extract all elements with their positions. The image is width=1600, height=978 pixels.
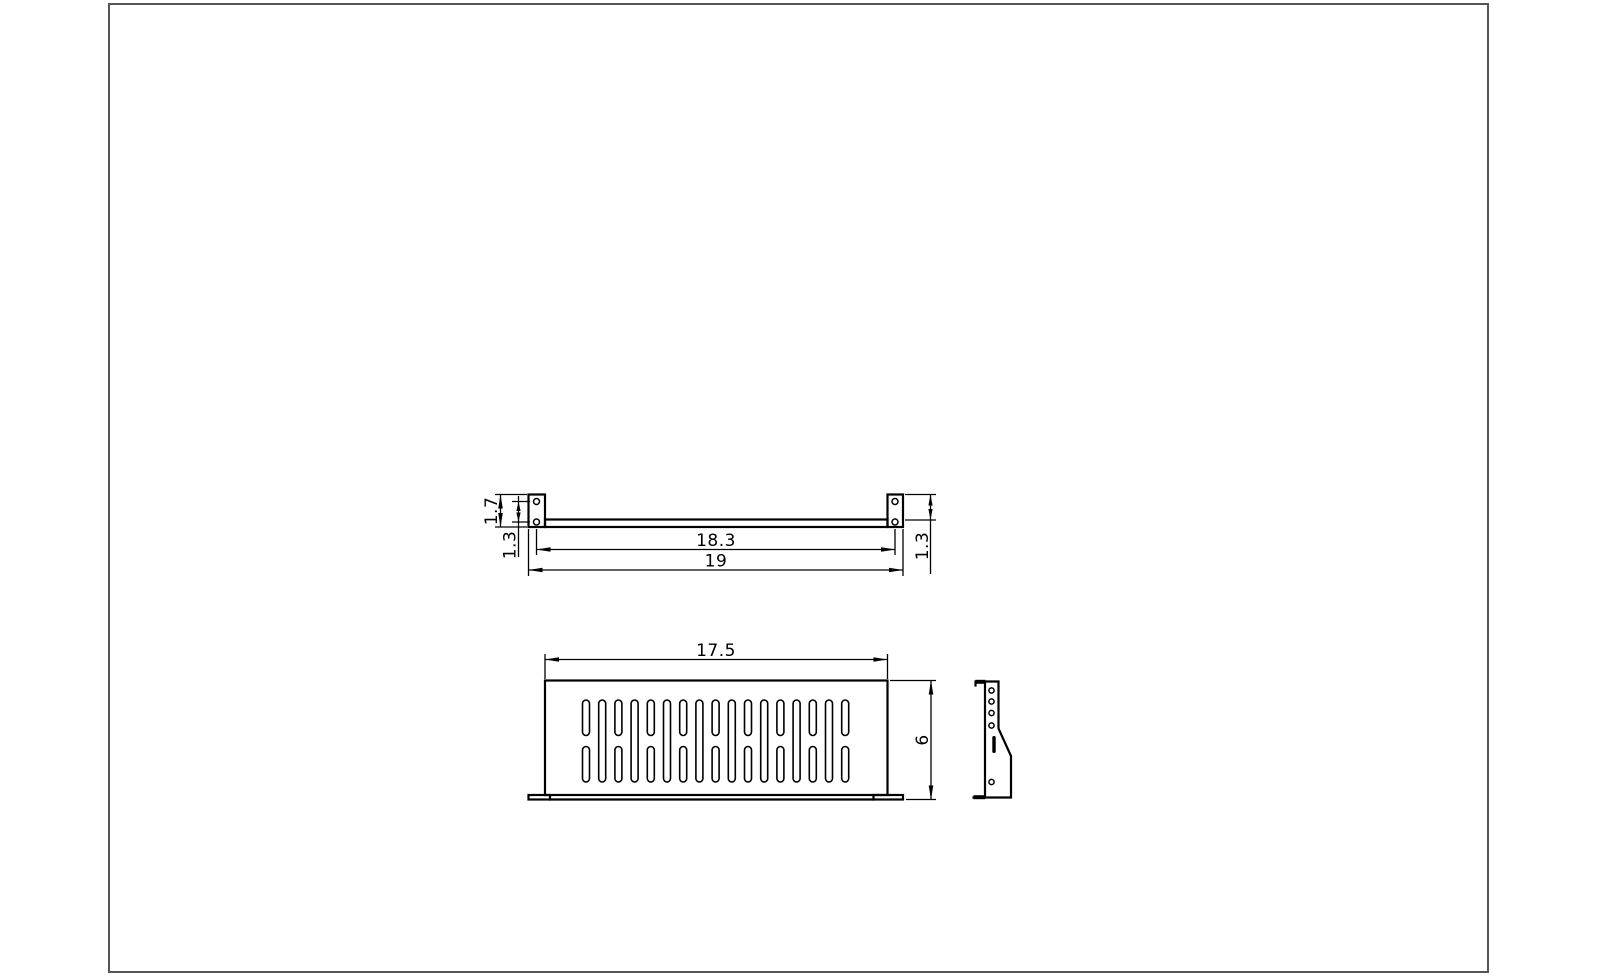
vent-slot bbox=[583, 700, 590, 736]
plan-view: 17.5 6 bbox=[529, 641, 937, 800]
bracket-hole-5 bbox=[989, 779, 994, 784]
dim-shelf-width: 17.5 bbox=[545, 641, 888, 679]
vent-slot bbox=[583, 747, 590, 783]
vent-slot bbox=[631, 700, 638, 782]
vent-slot bbox=[761, 700, 768, 782]
vent-slot bbox=[793, 700, 800, 782]
vent-slot bbox=[647, 747, 654, 783]
side-view bbox=[974, 682, 1012, 798]
bracket-hole-3 bbox=[989, 710, 994, 715]
vent-slot bbox=[809, 747, 816, 783]
vent-slot bbox=[615, 700, 622, 736]
vent-slot bbox=[647, 700, 654, 736]
dim-label-hole-span: 18.3 bbox=[696, 531, 736, 551]
dim-label-ear-height: 1.7 bbox=[482, 497, 502, 526]
vent-slot bbox=[826, 700, 833, 782]
left-ear-top-hole bbox=[534, 499, 540, 505]
vent-slot bbox=[696, 700, 703, 782]
right-flange-lip bbox=[874, 795, 904, 800]
front-view-geometry bbox=[529, 495, 904, 528]
dim-shelf-depth: 6 bbox=[890, 681, 936, 800]
dim-label-hole-pitch: 1.3 bbox=[501, 531, 521, 560]
vent-slot bbox=[712, 700, 719, 736]
drawing-sheet: 1.7 1.3 18.3 bbox=[0, 0, 1600, 978]
bracket-hole-4 bbox=[989, 723, 994, 728]
front-view: 1.7 1.3 18.3 bbox=[482, 495, 936, 577]
technical-drawing-canvas: 1.7 1.3 18.3 bbox=[0, 0, 1600, 978]
vent-slot bbox=[599, 700, 606, 782]
dim-label-shelf-depth: 6 bbox=[913, 734, 933, 745]
vent-slot bbox=[777, 747, 784, 783]
plan-view-geometry bbox=[529, 681, 904, 800]
vent-slot bbox=[728, 700, 735, 782]
vent-slot bbox=[842, 700, 849, 736]
left-ear-bottom-hole bbox=[534, 519, 540, 525]
dim-right-offset: 1.3 bbox=[905, 495, 936, 575]
right-ear-top-hole bbox=[892, 499, 898, 505]
shelf-plate-outline bbox=[545, 681, 888, 796]
bracket-slot bbox=[992, 736, 995, 753]
vent-slot bbox=[712, 747, 719, 783]
vent-slot bbox=[777, 700, 784, 736]
dim-label-overall-width: 19 bbox=[705, 552, 728, 572]
bracket-hole-1 bbox=[989, 688, 994, 693]
vent-slot bbox=[745, 747, 752, 783]
vent-slot bbox=[809, 700, 816, 736]
shelf-front-edge bbox=[545, 520, 888, 528]
right-ear-bottom-hole bbox=[892, 519, 898, 525]
bracket-hole-2 bbox=[989, 699, 994, 704]
vent-slot bbox=[745, 700, 752, 736]
vent-slot bbox=[680, 700, 687, 736]
left-flange-lip bbox=[529, 795, 551, 800]
vent-slot bbox=[680, 747, 687, 783]
vent-slot bbox=[842, 747, 849, 783]
dim-label-right-offset: 1.3 bbox=[913, 532, 933, 561]
vent-slots bbox=[583, 700, 849, 782]
dim-label-shelf-width: 17.5 bbox=[696, 641, 736, 661]
vent-slot bbox=[664, 700, 671, 782]
vent-slot bbox=[615, 747, 622, 783]
